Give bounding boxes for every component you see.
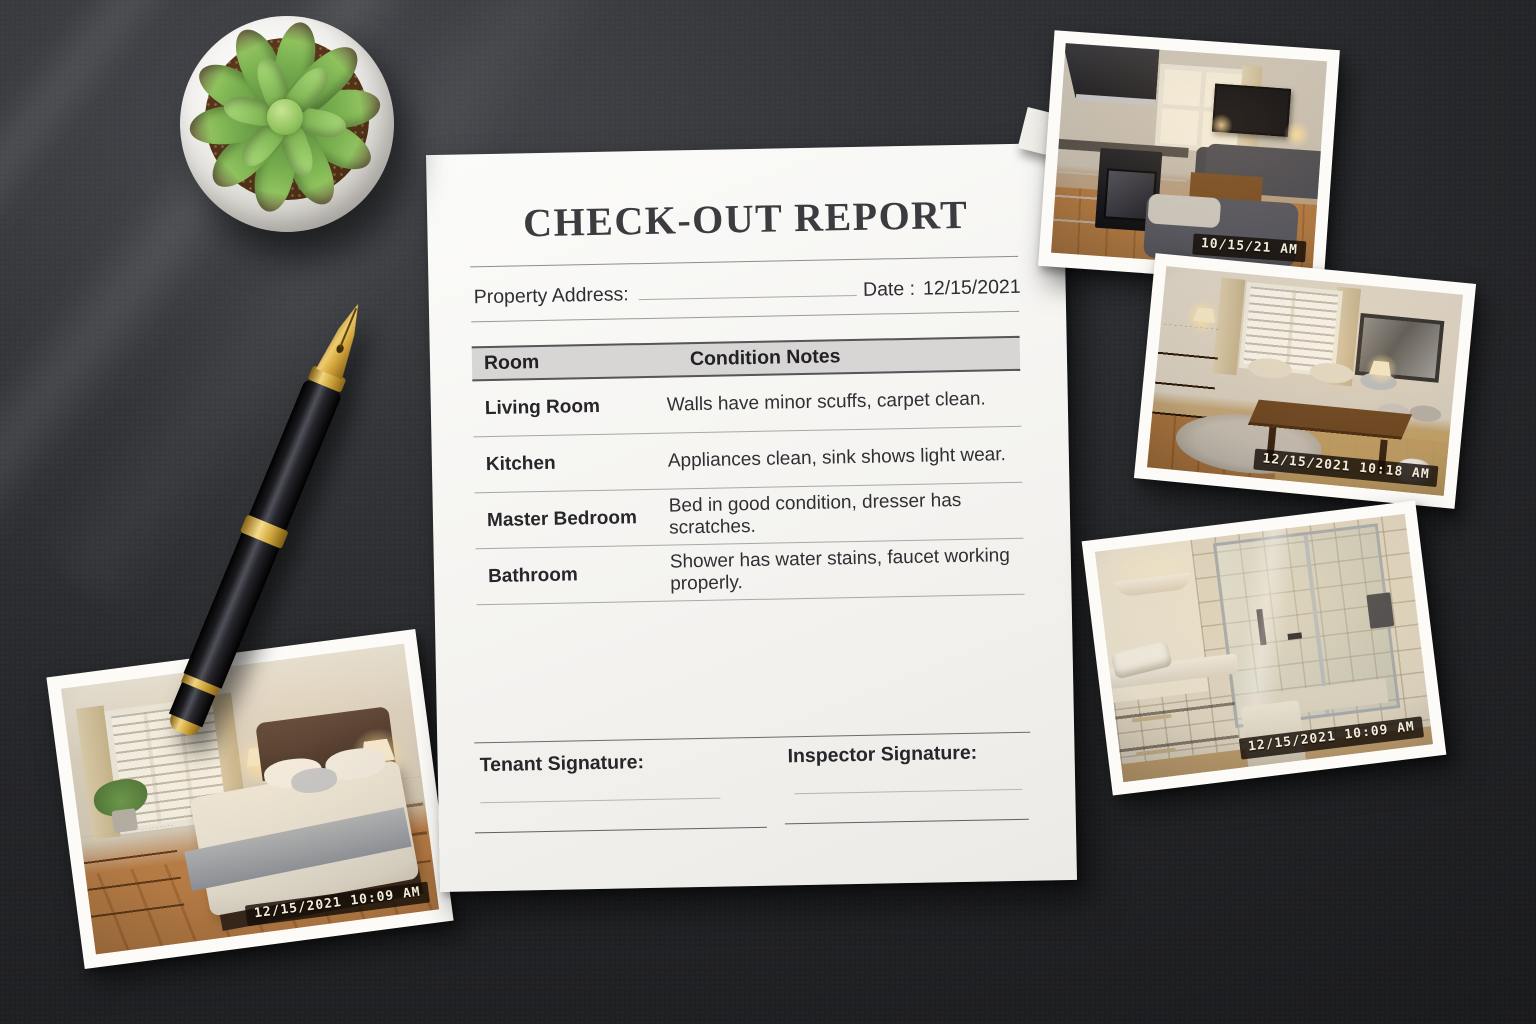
table-header-notes: Condition Notes	[652, 342, 1020, 372]
kitchen-photo-image: 10/15/21 AM	[1051, 43, 1327, 271]
table-row: Master Bedroom Bed in good condition, dr…	[474, 483, 1023, 550]
property-address-blank-line	[638, 275, 856, 300]
bedroom-plant-pot	[111, 808, 138, 833]
photo-kitchen-living: 10/15/21 AM	[1038, 30, 1340, 285]
condition-note: Walls have minor scuffs, carpet clean.	[653, 387, 1021, 416]
room-name: Master Bedroom	[475, 506, 655, 531]
table-row: Kitchen Appliances clean, sink shows lig…	[473, 427, 1022, 494]
tenant-signature-label: Tenant Signature:	[479, 751, 644, 777]
document-title: CHECK-OUT REPORT	[427, 189, 1065, 248]
bedroom-dresser	[81, 825, 185, 921]
tenant-signature-line-bottom	[475, 827, 767, 834]
photo-bathroom: 12/15/2021 10:09 AM	[1082, 500, 1447, 795]
divider-line	[471, 311, 1019, 323]
inspector-signature-line	[794, 789, 1022, 794]
table-row: Bathroom Shower has water stains, faucet…	[476, 539, 1025, 606]
date-value: 12/15/2021	[923, 276, 1021, 301]
bathroom-photo-image: 12/15/2021 10:09 AM	[1095, 514, 1433, 782]
succulent-center-bud	[267, 99, 303, 135]
desk-scene: 12/15/2021 10:09 AM CHECK-OUT REPORT Pro…	[0, 0, 1536, 1024]
living-dresser	[1147, 324, 1220, 428]
property-address-row: Property Address: Date : 12/15/2021	[473, 272, 1020, 309]
date-field: Date : 12/15/2021	[863, 276, 1021, 302]
succulent-plant	[180, 16, 394, 232]
condition-note: Appliances clean, sink shows light wear.	[654, 443, 1022, 472]
condition-note: Bed in good condition, dresser has scrat…	[655, 488, 1024, 539]
shower-handle	[1287, 632, 1302, 640]
lamp-glow	[1283, 121, 1311, 149]
date-label: Date :	[863, 278, 915, 302]
condition-table: Room Condition Notes Living Room Walls h…	[472, 336, 1025, 605]
table-header-room: Room	[472, 349, 652, 375]
bathroom-vanity	[1108, 672, 1243, 782]
table-row: Living Room Walls have minor scuffs, car…	[472, 371, 1021, 438]
bedroom-photo-image: 12/15/2021 10:09 AM	[61, 644, 439, 955]
room-name: Living Room	[473, 394, 653, 419]
room-name: Kitchen	[474, 450, 654, 475]
inspector-signature-label: Inspector Signature:	[787, 742, 977, 769]
property-address-label: Property Address:	[474, 283, 629, 309]
wall-panel	[1366, 592, 1394, 629]
sofa-cushion	[1147, 193, 1221, 228]
living-room-photo-image: 12/15/2021 10:18 AM	[1147, 266, 1463, 496]
divider-line	[470, 256, 1018, 268]
checkout-report-document: CHECK-OUT REPORT Property Address: Date …	[426, 143, 1077, 892]
condition-note: Shower has water stains, faucet working …	[656, 544, 1025, 595]
range-hood	[1058, 43, 1160, 103]
photo-living-room: 12/15/2021 10:18 AM	[1134, 253, 1476, 509]
room-name: Bathroom	[476, 562, 656, 587]
photo-bedroom: 12/15/2021 10:09 AM	[46, 629, 453, 969]
tenant-signature-line	[480, 798, 720, 804]
inspector-signature-line-bottom	[785, 819, 1029, 825]
